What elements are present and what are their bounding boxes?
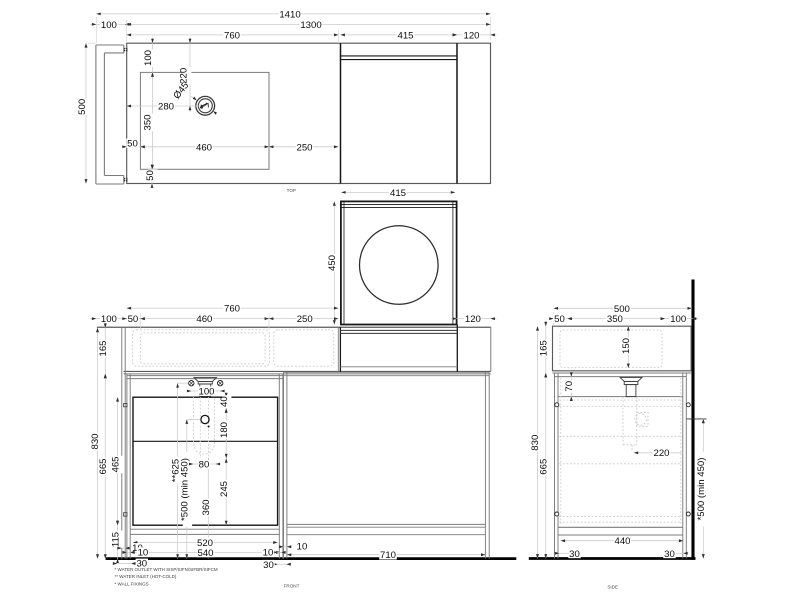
svg-text:180: 180: [219, 422, 230, 438]
svg-text:1410: 1410: [279, 9, 300, 20]
svg-text:280: 280: [158, 102, 174, 113]
svg-text:760: 760: [224, 304, 240, 315]
svg-text:100: 100: [198, 387, 214, 398]
svg-text:460: 460: [196, 314, 212, 325]
svg-text:415: 415: [390, 188, 406, 199]
svg-text:** WATER INLET (HOT-COLD): ** WATER INLET (HOT-COLD): [115, 574, 177, 579]
svg-text:100: 100: [101, 20, 117, 31]
svg-text:100: 100: [670, 314, 686, 325]
svg-text:150: 150: [621, 338, 632, 354]
svg-text:50: 50: [145, 170, 156, 181]
svg-text:665: 665: [539, 459, 550, 475]
svg-text:80: 80: [199, 460, 210, 471]
svg-text:350: 350: [143, 114, 154, 130]
svg-text:665: 665: [98, 458, 109, 474]
svg-text:40: 40: [219, 396, 230, 407]
svg-text:465: 465: [110, 456, 121, 472]
svg-text:30: 30: [569, 549, 580, 560]
svg-text:120: 120: [465, 314, 481, 325]
svg-text:415: 415: [397, 30, 413, 41]
svg-text:70: 70: [564, 381, 575, 392]
svg-text:350: 350: [607, 314, 623, 325]
svg-text:250: 250: [297, 314, 313, 325]
svg-text:760: 760: [224, 30, 240, 41]
svg-text:50: 50: [127, 139, 138, 150]
svg-text:30: 30: [263, 560, 274, 571]
svg-text:1300: 1300: [300, 20, 321, 31]
svg-text:245: 245: [219, 481, 230, 497]
svg-text:220: 220: [653, 448, 669, 459]
svg-text:TOP: TOP: [287, 188, 296, 193]
svg-text:*500 (min 450): *500 (min 450): [180, 458, 191, 521]
svg-text:10: 10: [138, 547, 149, 558]
svg-text:30: 30: [664, 549, 675, 560]
svg-text:100: 100: [143, 50, 154, 66]
svg-text:10: 10: [297, 542, 308, 553]
svg-text:120: 120: [463, 30, 479, 41]
svg-text:SIDE: SIDE: [607, 585, 618, 590]
svg-text:220: 220: [179, 68, 190, 84]
svg-text:100: 100: [101, 314, 117, 325]
svg-text:830: 830: [90, 433, 101, 449]
svg-text:540: 540: [197, 548, 213, 559]
svg-text:360: 360: [201, 499, 212, 515]
svg-text:440: 440: [614, 536, 630, 547]
svg-text:450: 450: [327, 255, 338, 271]
svg-text:FRONT: FRONT: [284, 584, 300, 589]
svg-text:* WALL FIXINGS: * WALL FIXINGS: [115, 582, 149, 587]
svg-text:500: 500: [77, 99, 88, 115]
svg-text:50: 50: [554, 314, 565, 325]
svg-text:* WATER OUTLET WITH SISP/SIFN: * WATER OUTLET WITH SISP/SIFN/SIFBR/SIFC…: [115, 567, 218, 572]
svg-text:115: 115: [110, 532, 121, 547]
svg-text:710: 710: [380, 550, 396, 561]
svg-text:830: 830: [530, 435, 541, 451]
svg-text:165: 165: [98, 340, 109, 356]
svg-text:*500 (min 450): *500 (min 450): [696, 458, 707, 521]
svg-text:165: 165: [539, 340, 550, 356]
svg-text:50: 50: [128, 314, 139, 325]
svg-text:250: 250: [296, 142, 312, 153]
svg-text:10: 10: [263, 547, 274, 558]
svg-text:460: 460: [196, 142, 212, 153]
